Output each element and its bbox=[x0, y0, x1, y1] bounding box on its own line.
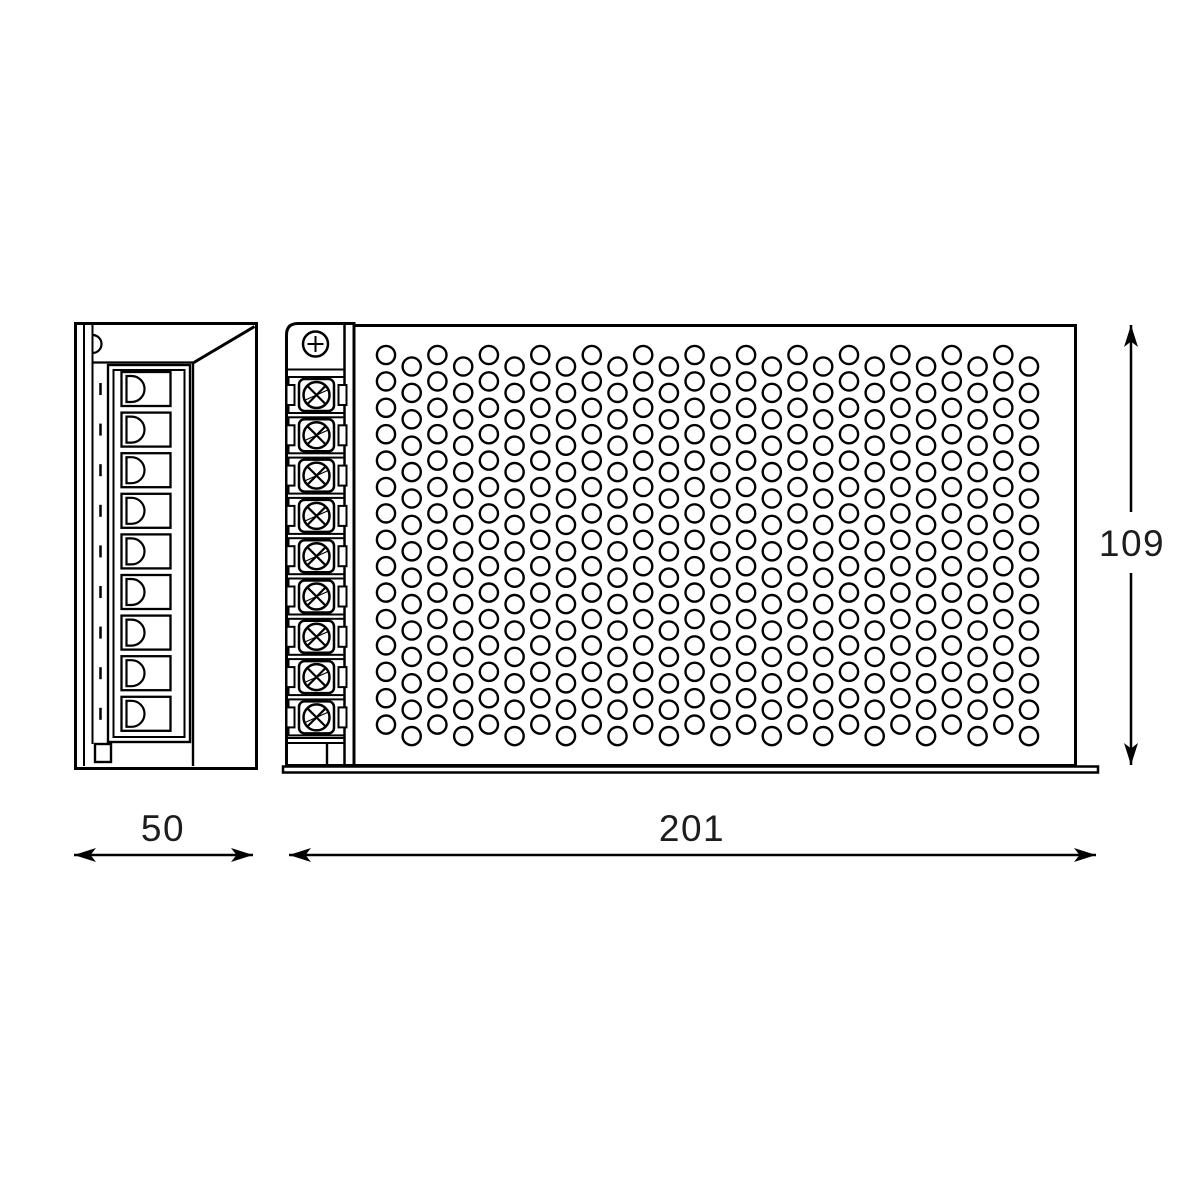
vent-hole bbox=[454, 569, 472, 587]
vent-hole bbox=[505, 674, 523, 692]
vent-hole bbox=[891, 689, 909, 707]
vent-hole bbox=[814, 674, 832, 692]
vent-hole bbox=[840, 452, 858, 470]
vent-hole bbox=[788, 504, 806, 522]
vent-hole bbox=[994, 452, 1012, 470]
vent-hole bbox=[994, 531, 1012, 549]
vent-hole bbox=[891, 531, 909, 549]
vent-hole bbox=[634, 663, 652, 681]
vent-hole bbox=[788, 636, 806, 654]
terminal-tab-right bbox=[339, 707, 347, 727]
vent-hole bbox=[531, 531, 549, 549]
vent-hole bbox=[943, 636, 961, 654]
vent-hole bbox=[711, 463, 729, 481]
vent-hole bbox=[917, 701, 935, 719]
vent-hole bbox=[711, 357, 729, 375]
vent-hole bbox=[454, 384, 472, 402]
vent-hole bbox=[583, 399, 601, 417]
side-slot-contact bbox=[127, 579, 145, 605]
vent-hole bbox=[454, 516, 472, 534]
vent-hole bbox=[969, 516, 987, 534]
vent-hole bbox=[969, 648, 987, 666]
vent-hole bbox=[583, 504, 601, 522]
vent-hole bbox=[737, 531, 755, 549]
vent-hole bbox=[969, 410, 987, 428]
vent-hole bbox=[583, 372, 601, 390]
vent-hole bbox=[557, 516, 575, 534]
vent-hole bbox=[557, 357, 575, 375]
vent-hole bbox=[377, 425, 395, 443]
vent-hole bbox=[531, 557, 549, 575]
vent-hole bbox=[1020, 648, 1038, 666]
bottom-flange bbox=[283, 767, 1098, 773]
vent-hole bbox=[377, 557, 395, 575]
vent-hole bbox=[788, 452, 806, 470]
vent-hole bbox=[428, 478, 446, 496]
vent-hole bbox=[531, 663, 549, 681]
vent-hole bbox=[634, 452, 652, 470]
vent-hole bbox=[608, 701, 626, 719]
vent-hole bbox=[454, 437, 472, 455]
vent-hole bbox=[403, 727, 421, 745]
vent-hole bbox=[891, 610, 909, 628]
terminal-tab-left bbox=[287, 667, 295, 687]
vent-hole bbox=[377, 478, 395, 496]
terminal-tab-right bbox=[339, 466, 347, 486]
vent-hole bbox=[788, 478, 806, 496]
vent-hole bbox=[1020, 384, 1038, 402]
vent-hole bbox=[788, 531, 806, 549]
vent-hole bbox=[840, 504, 858, 522]
vent-hole bbox=[943, 610, 961, 628]
vent-hole bbox=[531, 372, 549, 390]
vent-hole bbox=[686, 531, 704, 549]
vent-hole bbox=[814, 516, 832, 534]
vent-hole bbox=[943, 584, 961, 602]
vent-hole bbox=[634, 689, 652, 707]
vent-hole bbox=[969, 384, 987, 402]
vent-hole bbox=[505, 489, 523, 507]
terminal-tab-right bbox=[339, 546, 347, 566]
vent-hole bbox=[557, 595, 575, 613]
vent-hole bbox=[660, 595, 678, 613]
vent-hole bbox=[994, 689, 1012, 707]
vent-hole bbox=[634, 557, 652, 575]
vent-hole bbox=[969, 437, 987, 455]
vent-hole bbox=[403, 463, 421, 481]
vent-hole bbox=[866, 357, 884, 375]
vent-hole bbox=[634, 610, 652, 628]
vent-hole bbox=[686, 636, 704, 654]
vent-hole bbox=[454, 410, 472, 428]
vent-hole bbox=[377, 636, 395, 654]
vent-hole bbox=[505, 569, 523, 587]
terminal-tab-left bbox=[287, 385, 295, 405]
vent-hole bbox=[917, 727, 935, 745]
vent-hole bbox=[403, 701, 421, 719]
vent-hole bbox=[403, 516, 421, 534]
vent-hole bbox=[840, 531, 858, 549]
terminal-tab-right bbox=[339, 627, 347, 647]
vent-hole bbox=[686, 663, 704, 681]
terminal-tab-left bbox=[287, 425, 295, 445]
side-chamfer-diagonal bbox=[193, 327, 255, 364]
vent-hole bbox=[917, 648, 935, 666]
vent-hole bbox=[943, 399, 961, 417]
vent-hole bbox=[403, 648, 421, 666]
vent-hole bbox=[583, 584, 601, 602]
dim-label-front-width: 201 bbox=[659, 808, 725, 849]
vent-hole bbox=[428, 610, 446, 628]
vent-hole bbox=[866, 516, 884, 534]
vent-hole bbox=[994, 716, 1012, 734]
vent-hole bbox=[505, 410, 523, 428]
dimension-drawing: 50 201 109 bbox=[0, 0, 1200, 1200]
vent-hole bbox=[866, 463, 884, 481]
terminal-tab-right bbox=[339, 425, 347, 445]
dimension-front-height: 109 bbox=[1099, 325, 1165, 765]
vent-hole bbox=[403, 569, 421, 587]
vent-hole bbox=[763, 674, 781, 692]
vent-hole bbox=[814, 727, 832, 745]
vent-hole bbox=[1020, 674, 1038, 692]
vent-hole bbox=[377, 531, 395, 549]
vent-hole bbox=[763, 437, 781, 455]
vent-hole bbox=[866, 569, 884, 587]
vent-hole bbox=[891, 663, 909, 681]
vent-hole bbox=[454, 727, 472, 745]
side-slot-contact bbox=[127, 376, 145, 402]
vent-hole bbox=[454, 595, 472, 613]
vent-hole bbox=[969, 463, 987, 481]
vent-hole bbox=[686, 399, 704, 417]
vent-hole bbox=[711, 727, 729, 745]
vent-hole bbox=[711, 701, 729, 719]
vent-hole bbox=[737, 584, 755, 602]
vent-hole bbox=[891, 399, 909, 417]
vent-hole bbox=[480, 346, 498, 364]
vent-hole bbox=[686, 610, 704, 628]
vent-hole bbox=[505, 727, 523, 745]
vent-hole bbox=[969, 674, 987, 692]
vent-hole bbox=[454, 701, 472, 719]
vent-hole bbox=[763, 489, 781, 507]
vent-hole bbox=[1020, 569, 1038, 587]
vent-hole bbox=[686, 689, 704, 707]
vent-hole bbox=[994, 478, 1012, 496]
vent-hole bbox=[994, 504, 1012, 522]
vent-hole bbox=[634, 399, 652, 417]
vent-hole bbox=[634, 372, 652, 390]
vent-hole bbox=[608, 621, 626, 639]
terminal-tab-left bbox=[287, 587, 295, 607]
vent-hole bbox=[531, 504, 549, 522]
vent-hole bbox=[531, 478, 549, 496]
vent-hole bbox=[788, 372, 806, 390]
vent-hole bbox=[660, 701, 678, 719]
terminal-cells bbox=[287, 377, 347, 735]
terminal-tab-right bbox=[339, 385, 347, 405]
vent-hole bbox=[1020, 489, 1038, 507]
vent-hole bbox=[994, 610, 1012, 628]
side-slot-contact bbox=[127, 701, 145, 727]
vent-hole bbox=[763, 621, 781, 639]
vent-hole bbox=[840, 584, 858, 602]
vent-hole bbox=[840, 689, 858, 707]
vent-hole bbox=[943, 663, 961, 681]
terminal-tab-right bbox=[339, 667, 347, 687]
vent-hole bbox=[557, 463, 575, 481]
vent-hole bbox=[634, 716, 652, 734]
side-terminal-slots bbox=[101, 372, 171, 731]
vent-hole bbox=[505, 595, 523, 613]
vent-hole bbox=[943, 346, 961, 364]
dim-label-side-width: 50 bbox=[141, 808, 185, 849]
vent-hole bbox=[686, 346, 704, 364]
vent-hole bbox=[634, 478, 652, 496]
vent-hole bbox=[891, 372, 909, 390]
vent-hole bbox=[505, 463, 523, 481]
vent-hole bbox=[608, 516, 626, 534]
vent-hole bbox=[891, 504, 909, 522]
vent-hole bbox=[583, 531, 601, 549]
vent-hole bbox=[1020, 621, 1038, 639]
vent-hole bbox=[763, 569, 781, 587]
vent-hole bbox=[763, 357, 781, 375]
vent-hole bbox=[737, 716, 755, 734]
vent-hole bbox=[557, 384, 575, 402]
vent-hole bbox=[505, 357, 523, 375]
vent-hole bbox=[377, 716, 395, 734]
vent-hole bbox=[428, 452, 446, 470]
vent-hole bbox=[840, 399, 858, 417]
vent-hole bbox=[711, 384, 729, 402]
dimension-front-width: 201 bbox=[289, 808, 1096, 862]
vent-hole bbox=[480, 584, 498, 602]
vent-hole bbox=[428, 689, 446, 707]
vent-hole bbox=[1020, 437, 1038, 455]
vent-hole bbox=[557, 410, 575, 428]
vent-hole bbox=[814, 489, 832, 507]
vent-hole bbox=[711, 595, 729, 613]
vent-hole bbox=[505, 542, 523, 560]
vent-hole bbox=[686, 584, 704, 602]
vent-hole bbox=[1020, 463, 1038, 481]
vent-hole bbox=[763, 727, 781, 745]
vent-hole bbox=[403, 621, 421, 639]
vent-hole bbox=[737, 425, 755, 443]
side-view bbox=[76, 324, 257, 769]
vent-hole bbox=[480, 716, 498, 734]
terminal-tab-left bbox=[287, 707, 295, 727]
terminal-tab-left bbox=[287, 466, 295, 486]
vent-hole bbox=[737, 504, 755, 522]
vent-hole bbox=[737, 399, 755, 417]
vent-hole bbox=[943, 372, 961, 390]
vent-hole bbox=[969, 489, 987, 507]
vent-hole bbox=[480, 399, 498, 417]
vent-hole bbox=[891, 636, 909, 654]
vent-hole bbox=[531, 689, 549, 707]
vent-hole bbox=[403, 542, 421, 560]
vent-hole bbox=[917, 542, 935, 560]
vent-hole bbox=[660, 674, 678, 692]
vent-hole bbox=[866, 489, 884, 507]
vent-hole bbox=[866, 727, 884, 745]
vent-hole bbox=[866, 437, 884, 455]
vent-hole bbox=[994, 346, 1012, 364]
vent-hole bbox=[377, 372, 395, 390]
side-slot-contact bbox=[127, 538, 145, 564]
vent-hole bbox=[531, 610, 549, 628]
vent-hole bbox=[1020, 410, 1038, 428]
vent-hole bbox=[377, 584, 395, 602]
vent-hole bbox=[583, 452, 601, 470]
vent-hole bbox=[660, 621, 678, 639]
terminal-tab-left bbox=[287, 546, 295, 566]
vent-hole bbox=[608, 674, 626, 692]
vent-hole bbox=[608, 410, 626, 428]
side-slot-contact bbox=[127, 660, 145, 686]
vent-hole bbox=[1020, 516, 1038, 534]
vent-hole bbox=[737, 557, 755, 575]
vent-hole bbox=[557, 701, 575, 719]
vent-hole bbox=[737, 636, 755, 654]
vent-hole bbox=[660, 569, 678, 587]
vent-hole bbox=[943, 689, 961, 707]
vent-hole bbox=[788, 689, 806, 707]
vent-hole bbox=[711, 621, 729, 639]
vent-hole bbox=[583, 689, 601, 707]
vent-hole bbox=[428, 557, 446, 575]
vent-hole bbox=[737, 478, 755, 496]
terminal-tab-right bbox=[339, 587, 347, 607]
vent-hole bbox=[686, 425, 704, 443]
vent-hole bbox=[891, 478, 909, 496]
vent-hole bbox=[737, 610, 755, 628]
vent-hole bbox=[428, 531, 446, 549]
vent-hole bbox=[763, 410, 781, 428]
vent-hole bbox=[531, 346, 549, 364]
vent-hole bbox=[480, 689, 498, 707]
vent-hole bbox=[480, 531, 498, 549]
vent-hole bbox=[814, 595, 832, 613]
terminal-tab-left bbox=[287, 506, 295, 526]
vent-hole bbox=[377, 689, 395, 707]
side-housing-outer bbox=[108, 365, 190, 742]
vent-hole bbox=[634, 636, 652, 654]
vent-hole bbox=[788, 557, 806, 575]
vent-hole bbox=[1020, 701, 1038, 719]
perforation-grid bbox=[377, 346, 1038, 745]
vent-hole bbox=[994, 372, 1012, 390]
vent-hole bbox=[994, 399, 1012, 417]
vent-hole bbox=[711, 674, 729, 692]
vent-hole bbox=[1020, 357, 1038, 375]
vent-hole bbox=[994, 636, 1012, 654]
vent-hole bbox=[969, 357, 987, 375]
vent-hole bbox=[814, 569, 832, 587]
vent-hole bbox=[480, 372, 498, 390]
vent-hole bbox=[428, 636, 446, 654]
vent-hole bbox=[557, 727, 575, 745]
vent-hole bbox=[505, 621, 523, 639]
vent-hole bbox=[814, 463, 832, 481]
vent-hole bbox=[840, 557, 858, 575]
vent-hole bbox=[660, 489, 678, 507]
vent-hole bbox=[788, 346, 806, 364]
vent-hole bbox=[583, 478, 601, 496]
vent-hole bbox=[608, 595, 626, 613]
vent-hole bbox=[480, 557, 498, 575]
vent-hole bbox=[686, 557, 704, 575]
vent-hole bbox=[634, 346, 652, 364]
vent-hole bbox=[428, 663, 446, 681]
vent-hole bbox=[866, 701, 884, 719]
vent-hole bbox=[917, 516, 935, 534]
vent-hole bbox=[917, 569, 935, 587]
vent-hole bbox=[660, 648, 678, 666]
vent-hole bbox=[686, 452, 704, 470]
vent-hole bbox=[994, 663, 1012, 681]
vent-hole bbox=[583, 663, 601, 681]
terminal-tab-left bbox=[287, 627, 295, 647]
vent-hole bbox=[480, 610, 498, 628]
vent-hole bbox=[763, 463, 781, 481]
vent-hole bbox=[917, 595, 935, 613]
vent-hole bbox=[531, 636, 549, 654]
vent-hole bbox=[814, 621, 832, 639]
vent-hole bbox=[891, 584, 909, 602]
vent-hole bbox=[840, 372, 858, 390]
vent-hole bbox=[686, 478, 704, 496]
vent-hole bbox=[943, 531, 961, 549]
vent-hole bbox=[428, 399, 446, 417]
vent-hole bbox=[428, 346, 446, 364]
vent-hole bbox=[891, 452, 909, 470]
vent-hole bbox=[531, 399, 549, 417]
vent-hole bbox=[763, 595, 781, 613]
vent-hole bbox=[686, 372, 704, 390]
vent-hole bbox=[814, 410, 832, 428]
vent-hole bbox=[557, 621, 575, 639]
vent-hole bbox=[428, 372, 446, 390]
vent-hole bbox=[1020, 595, 1038, 613]
vent-hole bbox=[454, 489, 472, 507]
technical-drawing-canvas: 50 201 109 bbox=[0, 0, 1200, 1200]
vent-hole bbox=[583, 716, 601, 734]
vent-hole bbox=[866, 595, 884, 613]
vent-hole bbox=[608, 357, 626, 375]
vent-hole bbox=[505, 701, 523, 719]
vent-hole bbox=[763, 648, 781, 666]
vent-hole bbox=[454, 648, 472, 666]
vent-hole bbox=[711, 569, 729, 587]
vent-hole bbox=[608, 542, 626, 560]
vent-hole bbox=[531, 425, 549, 443]
vent-hole bbox=[866, 621, 884, 639]
vent-hole bbox=[660, 410, 678, 428]
vent-hole bbox=[840, 478, 858, 496]
vent-hole bbox=[711, 542, 729, 560]
vent-hole bbox=[428, 716, 446, 734]
vent-hole bbox=[660, 727, 678, 745]
vent-hole bbox=[969, 595, 987, 613]
vent-hole bbox=[711, 410, 729, 428]
vent-hole bbox=[403, 489, 421, 507]
vent-hole bbox=[788, 425, 806, 443]
vent-hole bbox=[403, 384, 421, 402]
